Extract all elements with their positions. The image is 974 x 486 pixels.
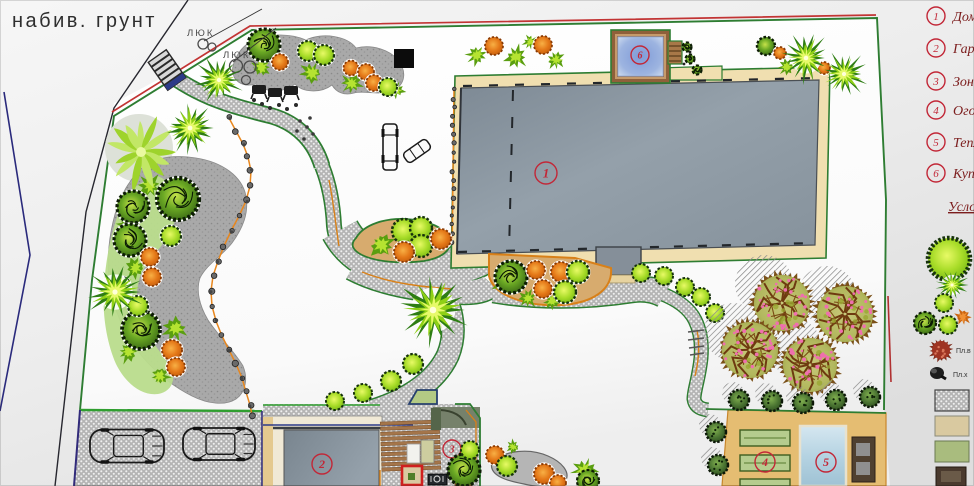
svg-text:1: 1 <box>933 11 939 23</box>
svg-text:4: 4 <box>761 455 768 469</box>
svg-text:6: 6 <box>638 51 643 62</box>
svg-text:3: 3 <box>932 76 939 88</box>
svg-text:3: 3 <box>449 445 455 456</box>
svg-text:набив. грунт: набив. грунт <box>12 10 157 32</box>
svg-text:Условн: Условн <box>948 200 974 215</box>
svg-text:Пл.в: Пл.в <box>956 348 971 355</box>
svg-text:1: 1 <box>543 165 550 180</box>
svg-text:2: 2 <box>933 43 939 55</box>
svg-text:6: 6 <box>933 168 939 180</box>
svg-text:Тепл: Тепл <box>953 136 974 151</box>
svg-text:5: 5 <box>823 455 829 469</box>
svg-text:4: 4 <box>933 105 939 117</box>
svg-text:5: 5 <box>933 137 939 149</box>
svg-text:Огор: Огор <box>953 104 974 119</box>
svg-text:2: 2 <box>318 457 325 471</box>
svg-text:Зона: Зона <box>953 75 974 90</box>
svg-text:Дом: Дом <box>951 10 974 25</box>
svg-text:Куп: Куп <box>952 167 974 182</box>
svg-text:Гараж: Гараж <box>952 42 974 57</box>
svg-text:Пл.х: Пл.х <box>953 372 968 379</box>
